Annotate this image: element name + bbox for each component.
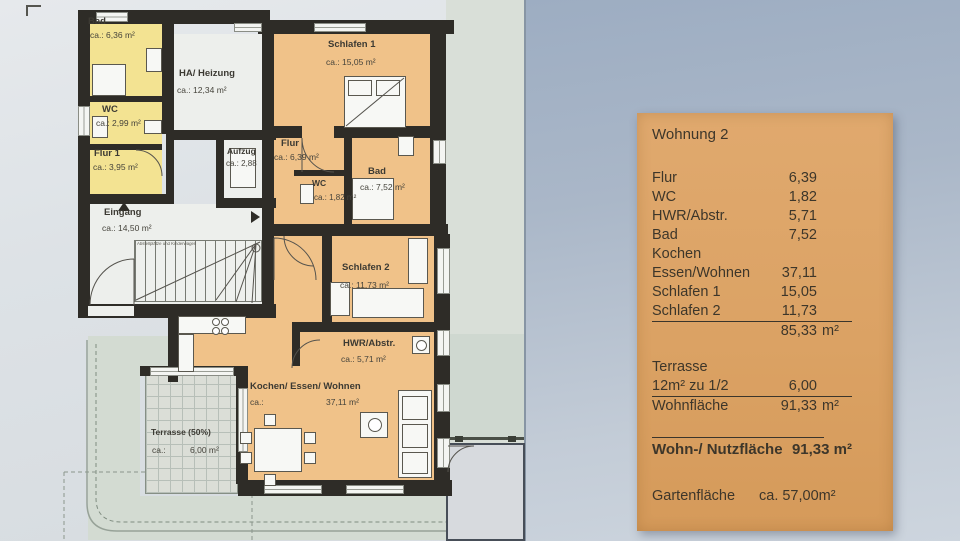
row-unit: m²	[817, 397, 852, 416]
chair	[264, 474, 276, 486]
area-terrasse: 6,00 m²	[190, 446, 219, 455]
row-value: 5,71	[765, 207, 817, 226]
label-schlafen2: Schlafen 2	[342, 263, 390, 273]
chair	[264, 414, 276, 426]
row-label: Schlafen 2	[652, 302, 765, 321]
door-gap	[302, 126, 334, 138]
wall	[82, 96, 162, 102]
terrasse-heading: Terrasse	[652, 358, 852, 377]
panel-row: Essen/Wohnen37,11	[652, 264, 852, 283]
window	[437, 438, 450, 468]
label-terrasse: Terrasse (50%)	[151, 427, 211, 437]
window	[433, 140, 446, 164]
label-schlafen1: Schlafen 1	[328, 40, 376, 50]
label-bad-yellow: Bad	[88, 17, 106, 27]
sink	[144, 120, 162, 134]
row-value	[765, 245, 817, 264]
window	[437, 248, 450, 294]
subtotal-row: 85,33m²	[652, 322, 852, 341]
wall	[216, 198, 276, 208]
row-label: Essen/Wohnen	[652, 264, 765, 283]
area-schlafen1: ca.: 15,05 m²	[326, 58, 376, 67]
terrasse-heading-row: Terrasse	[652, 358, 852, 377]
panel-row: Schlafen 115,05	[652, 283, 852, 302]
entrance-opening	[88, 306, 134, 316]
area-summary-panel: Wohnung 2 Flur6,39 WC1,82 HWR/Abstr.5,71…	[637, 113, 893, 531]
row-value: 11,73	[765, 302, 817, 321]
window	[264, 485, 322, 494]
row-value: 91,33	[765, 397, 817, 416]
area-flur: ca.: 6,39 m²	[274, 153, 319, 162]
label-wc: WC	[312, 178, 326, 188]
terrasse-row: 12m² zu 1/26,00	[652, 377, 852, 397]
pillow	[348, 80, 372, 96]
sink	[146, 48, 162, 72]
row-label: WC	[652, 188, 765, 207]
wall	[216, 140, 224, 206]
neighbor-room	[446, 443, 525, 541]
area-schlafen2: ca.: 11,73 m²	[340, 281, 389, 290]
label-flur1: Flur 1	[94, 149, 120, 159]
wall	[78, 10, 90, 318]
subtotal-unit: m²	[817, 322, 852, 341]
total-label: Wohn-/ Nutzfläche	[652, 440, 792, 459]
wall	[268, 126, 302, 138]
cushion	[402, 424, 428, 448]
washer-door	[416, 340, 427, 351]
wall	[166, 130, 276, 140]
garten-row: Gartenflächeca. 57,00m²	[652, 487, 852, 506]
area-wc: ca.: 1,82 m²	[314, 193, 356, 202]
area-bad-yellow: ca.: 6,36 m²	[90, 31, 135, 40]
pillow	[376, 80, 400, 96]
wall	[266, 224, 448, 236]
chair	[304, 452, 316, 464]
stair-note: Abstellplätze und Kinderwagen	[137, 242, 245, 246]
bed-schlafen2	[352, 288, 424, 318]
row-label: Kochen	[652, 245, 765, 264]
row-label: Bad	[652, 226, 765, 245]
area-eingang: ca.: 14,50 m²	[102, 224, 152, 233]
entrance-arrow-icon	[251, 211, 260, 223]
total-value: 91,33 m²	[792, 440, 852, 459]
label-eingang: Eingang	[104, 208, 141, 218]
sink	[398, 136, 414, 156]
desk	[408, 238, 428, 284]
wall	[292, 332, 300, 366]
table-decor	[368, 418, 382, 432]
neighbor-terrace	[446, 334, 524, 440]
garten-value: ca. 57,00m²	[759, 487, 836, 506]
panel-title: Wohnung 2	[652, 125, 852, 144]
window	[234, 23, 262, 32]
area-hwr: ca.: 5,71 m²	[341, 355, 386, 364]
wohnflaeche-row: Wohnfläche91,33m²	[652, 397, 852, 416]
label-flur: Flur	[281, 139, 299, 149]
label-wohnen: Kochen/ Essen/ Wohnen	[250, 382, 361, 392]
area-aufzug: ca.: 2,88	[226, 159, 257, 168]
window	[346, 485, 404, 494]
panel-row: Flur6,39	[652, 169, 852, 188]
kitchen-counter	[178, 334, 194, 372]
row-label: HWR/Abstr.	[652, 207, 765, 226]
dining-table	[254, 428, 302, 472]
row-label: Wohnfläche	[652, 397, 765, 416]
row-value: 37,11	[765, 264, 817, 283]
wall	[430, 20, 446, 234]
stove-icon	[212, 318, 230, 334]
label-heizung: HA/ Heizung	[179, 69, 235, 79]
staircase	[134, 240, 262, 302]
window	[78, 106, 90, 136]
window	[314, 23, 366, 32]
room-heizung	[174, 34, 262, 130]
shower	[92, 64, 126, 96]
window	[437, 384, 450, 412]
row-value: 7,52	[765, 226, 817, 245]
window	[437, 330, 450, 356]
row-value: 15,05	[765, 283, 817, 302]
area-heizung: ca.: 12,34 m²	[177, 86, 227, 95]
total-separator	[652, 437, 824, 438]
wall	[292, 322, 438, 332]
panel-row: Kochen	[652, 245, 852, 264]
wall	[262, 20, 274, 306]
label-wc-yellow: WC	[102, 105, 118, 115]
wall	[166, 130, 174, 204]
chair	[240, 452, 252, 464]
total-row: Wohn-/ Nutzfläche91,33 m²	[652, 440, 852, 459]
panel-row: HWR/Abstr.5,71	[652, 207, 852, 226]
row-label: Flur	[652, 169, 765, 188]
floorplan-photo: Abstellplätze und Kinderwagen	[0, 0, 960, 541]
panel-row: WC1,82	[652, 188, 852, 207]
garten-label: Gartenfläche	[652, 487, 759, 506]
cushion	[402, 452, 428, 474]
label-bad: Bad	[368, 167, 386, 177]
panel-row-underlined: Schlafen 211,73	[652, 302, 852, 322]
corner-mark	[26, 5, 41, 16]
fence-post	[508, 436, 516, 442]
row-value: 6,39	[765, 169, 817, 188]
row-value: 6,00	[765, 377, 817, 396]
row-label: 12m² zu 1/2	[652, 377, 765, 396]
area-bad: ca.: 7,52 m²	[360, 183, 405, 192]
row-label: Schlafen 1	[652, 283, 765, 302]
label-hwr: HWR/Abstr.	[343, 339, 395, 349]
cushion	[402, 396, 428, 420]
row-value: 1,82	[765, 188, 817, 207]
label-aufzug: Aufzug	[227, 146, 256, 156]
wall	[162, 10, 174, 134]
subtotal-value: 85,33	[765, 322, 817, 341]
area-prefix-wohnen: ca.:	[250, 398, 264, 407]
fence-post	[455, 436, 463, 442]
area-wc-yellow: ca.: 2,99 m²	[96, 119, 141, 128]
chair	[304, 432, 316, 444]
area-prefix-terrasse: ca.:	[152, 446, 166, 455]
area-wohnen: 37,11 m²	[326, 398, 359, 407]
area-flur1: ca.: 3,95 m²	[93, 163, 138, 172]
chair	[240, 432, 252, 444]
panel-row: Bad7,52	[652, 226, 852, 245]
